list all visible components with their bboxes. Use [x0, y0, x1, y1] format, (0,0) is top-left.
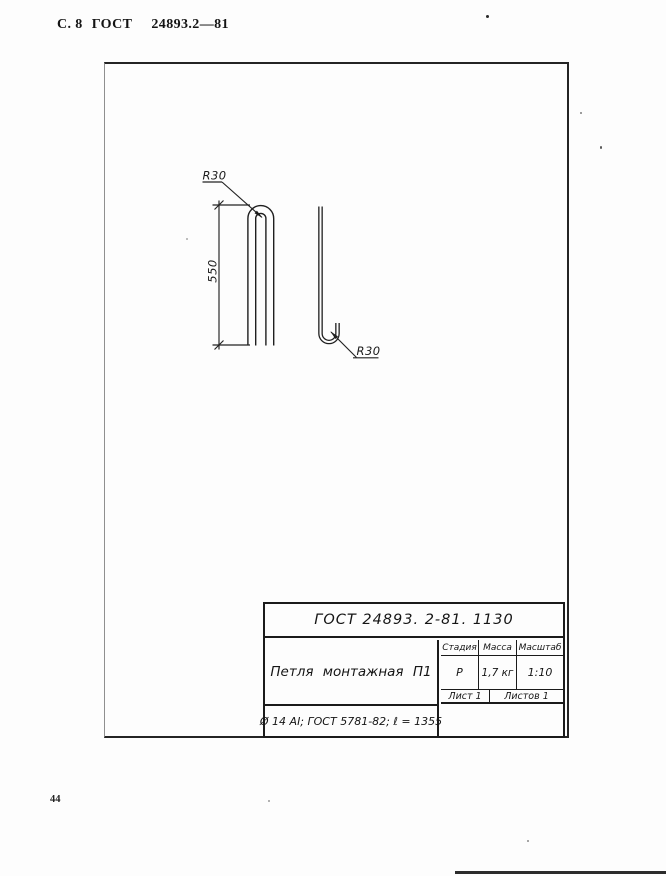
- scan-speck: [600, 146, 602, 149]
- page-number: 44: [50, 794, 61, 805]
- scan-speck: [580, 112, 582, 114]
- scan-speck: [268, 800, 270, 802]
- loop-front-view: [252, 210, 270, 346]
- scan-speck: [527, 840, 529, 842]
- title-block: ГОСТ 24893. 2-81. 1130 Петля монтажная П…: [263, 602, 565, 738]
- stamp-sheet-cell: Лист 1: [441, 690, 490, 704]
- leader-radius-top: R30: [203, 169, 263, 219]
- dimension-550-label: 550: [206, 259, 220, 282]
- technical-drawing: 550 R30 R30: [0, 0, 666, 876]
- stamp-stage-value: Р: [441, 656, 479, 690]
- stamp-stage-header: Стадия: [441, 640, 479, 656]
- stamp-doc-ref: ГОСТ 24893. 2-81. 1130: [265, 604, 563, 638]
- loop-side-view: [321, 207, 338, 343]
- stamp-spec-line: Ø 14 АI; ГОСТ 5781-82; ℓ = 1355: [265, 704, 439, 736]
- scan-speck: [186, 238, 188, 240]
- scan-edge-line: [455, 871, 666, 874]
- stamp-sheets-cell: Листов 1: [490, 690, 563, 704]
- stamp-mass-header: Масса: [479, 640, 517, 656]
- dimension-550: 550: [206, 201, 251, 350]
- stamp-scale-header: Масштаб: [517, 640, 563, 656]
- scanned-document-page: С. 8 ГОСТ 24893.2—81 550: [0, 0, 666, 876]
- stamp-scale-value: 1:10: [517, 656, 563, 690]
- stamp-mass-value: 1,7 кг: [479, 656, 517, 690]
- stamp-part-name: Петля монтажная П1: [265, 640, 439, 704]
- radius-bottom-label: R30: [357, 344, 381, 358]
- radius-top-label: R30: [203, 169, 227, 183]
- scan-speck: [486, 15, 489, 18]
